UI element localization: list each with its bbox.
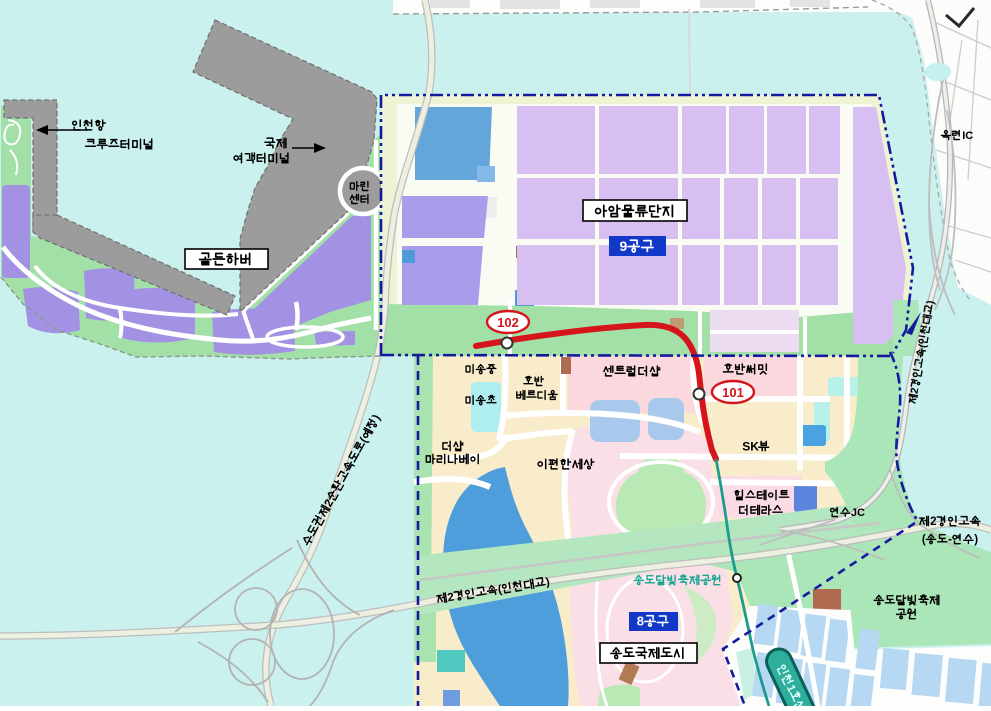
svg-text:JC: JC	[851, 507, 865, 519]
svg-text:): )	[974, 534, 978, 546]
svg-text:-: -	[948, 534, 952, 546]
svg-text:102: 102	[497, 315, 519, 330]
svg-text:8: 8	[637, 614, 644, 629]
svg-text:9: 9	[620, 238, 628, 254]
svg-text:101: 101	[722, 385, 744, 400]
svg-text:2: 2	[930, 516, 936, 528]
svg-text:SK: SK	[742, 439, 759, 453]
svg-text:(: (	[922, 534, 926, 546]
svg-text:IC: IC	[962, 130, 973, 142]
